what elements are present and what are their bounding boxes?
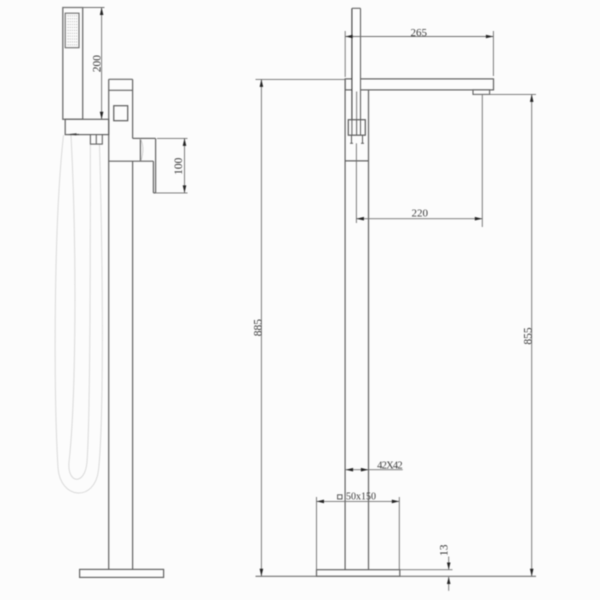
svg-text:13: 13 bbox=[438, 544, 450, 556]
svg-text:42X42: 42X42 bbox=[377, 460, 402, 471]
svg-text:50x150: 50x150 bbox=[346, 491, 376, 502]
svg-text:100: 100 bbox=[173, 157, 185, 175]
svg-text:220: 220 bbox=[411, 208, 428, 220]
svg-text:265: 265 bbox=[410, 27, 427, 39]
svg-text:855: 855 bbox=[522, 327, 534, 345]
svg-text:885: 885 bbox=[253, 319, 265, 337]
svg-text:200: 200 bbox=[92, 55, 104, 73]
